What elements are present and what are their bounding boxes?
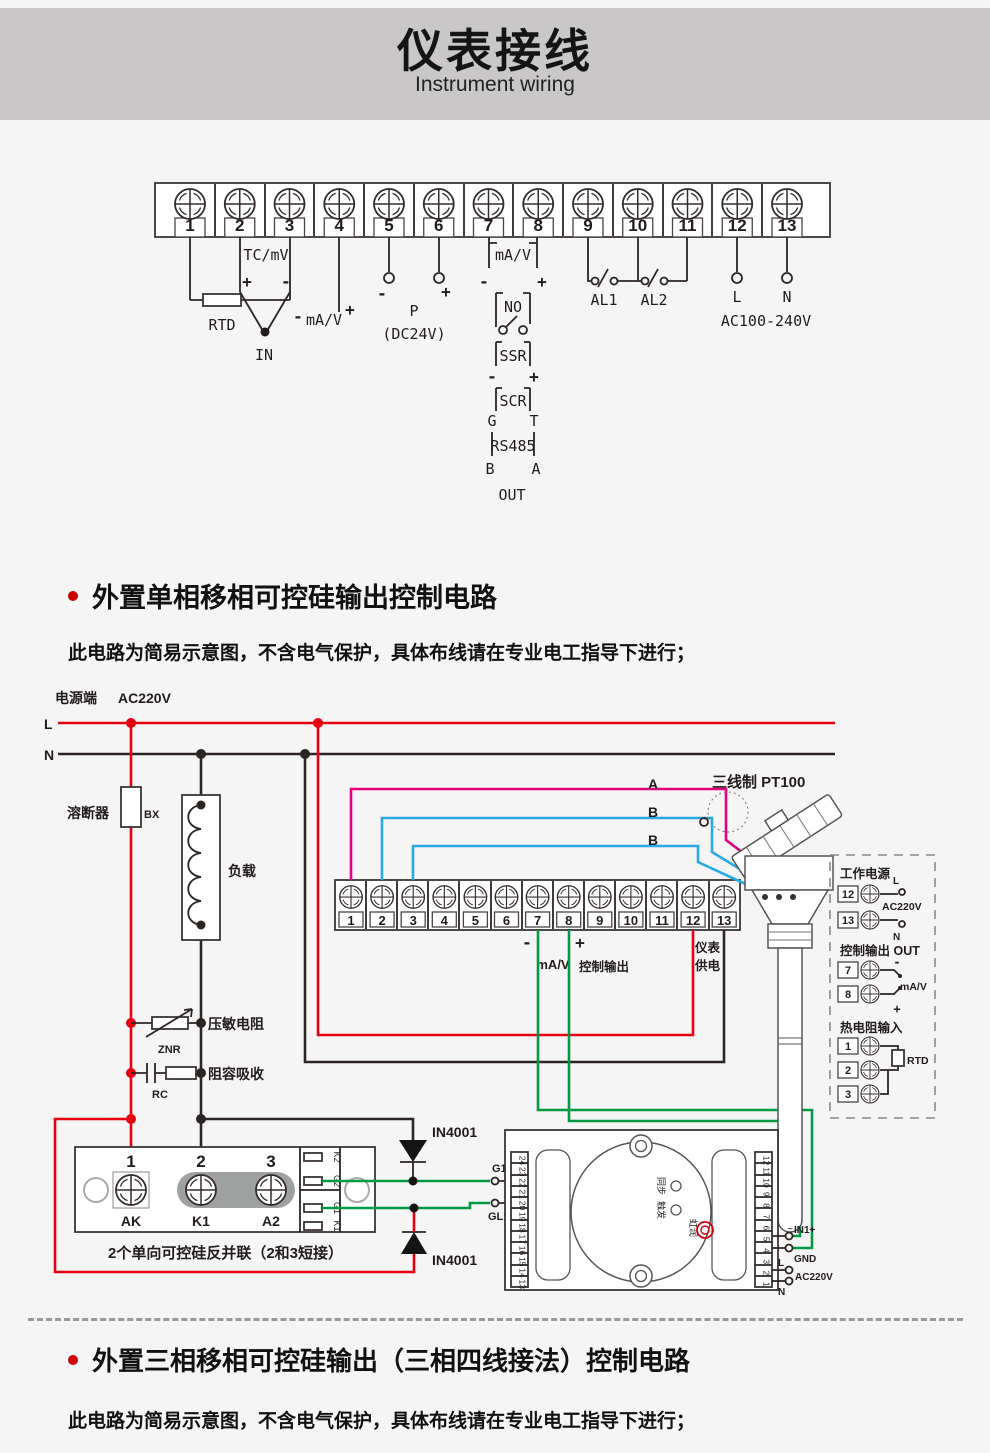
ref-t7: 7 [845, 965, 851, 977]
screw-terminal-icon [433, 886, 456, 909]
znr-code: ZNR [158, 1044, 181, 1056]
screw-terminal-icon [175, 189, 205, 219]
pin-number: 9 [762, 1192, 772, 1197]
screw-terminal-icon [464, 886, 487, 909]
fuse-code: BX [144, 809, 160, 821]
pt100-label: 三线制 PT100 [712, 773, 805, 791]
ref-mav: mA/V [900, 981, 927, 993]
pin-number: 16 [518, 1246, 528, 1256]
terminal-number: 12 [728, 216, 747, 235]
mav-in-plus: + [345, 300, 355, 319]
trigger-left-pins: 242322212019181716151413 [518, 1156, 528, 1289]
ref-t12: 12 [842, 889, 854, 901]
in1-label: IN1+ [794, 1225, 816, 1236]
p-label: P [409, 302, 418, 320]
meter-supply-label-2: 供电 [694, 958, 721, 973]
terminal-wiring-diagram: 12345678910111213 TC/mV + - RTD - mA/V +… [0, 160, 990, 520]
ctrl-out-label: 控制输出 [579, 959, 629, 974]
mav-in-label: mA/V [306, 311, 342, 329]
scr-terminal-1: 1 [126, 1152, 135, 1171]
diode2 [401, 1232, 427, 1254]
ref-t8: 8 [845, 989, 851, 1001]
pin-number: 6 [762, 1226, 772, 1231]
pin-number: 18 [518, 1223, 528, 1233]
screw-terminal-icon [523, 189, 553, 219]
tc-minus: - [281, 272, 291, 291]
diode2-label: IN4001 [432, 1252, 477, 1268]
mav-out-minus: - [479, 272, 489, 291]
pin-number: 5 [762, 1237, 772, 1242]
mav-out-label: mA/V [495, 246, 531, 264]
p-minus: - [377, 284, 387, 303]
wire-a-label: A [648, 776, 658, 792]
terminal-number: 2 [235, 216, 244, 235]
screw-terminal-icon [673, 189, 703, 219]
rtd-label: RTD [208, 316, 235, 334]
pin-number: 24 [518, 1156, 528, 1166]
terminal-number: 8 [565, 913, 572, 928]
gnd-label: GND [794, 1254, 816, 1265]
scr-module-caption: 2个单向可控硅反并联（2和3短接） [108, 1244, 343, 1262]
power-end-label: 电源端 [55, 690, 97, 706]
fuse-label: 溶断器 [67, 805, 110, 821]
terminal-number: 12 [686, 913, 700, 928]
ctrl-minus: - [522, 933, 532, 952]
in-label: IN [255, 346, 273, 364]
ref-plus: + [893, 1002, 900, 1016]
ref-t3: 3 [845, 1089, 851, 1101]
ssr-minus: - [487, 367, 497, 386]
pin-number: 11 [762, 1167, 772, 1176]
out-label: OUT [498, 486, 525, 504]
terminal-number: 10 [628, 216, 647, 235]
rs485-b: B [485, 460, 494, 478]
scr-a2-label: A2 [262, 1213, 280, 1229]
screw-terminal-icon [772, 189, 802, 219]
al2-label: AL2 [640, 291, 667, 309]
diode1 [399, 1140, 427, 1162]
terminal-number: 2 [378, 913, 385, 928]
terminal-number: 4 [441, 913, 449, 928]
indicator-label-1: 同步 [656, 1177, 666, 1195]
al1-label: AL1 [590, 291, 617, 309]
screw-terminal-icon [374, 189, 404, 219]
terminal-number: 1 [347, 913, 354, 928]
rc-label: 阻容吸收 [208, 1066, 265, 1082]
scr-label: SCR [499, 392, 527, 410]
terminal-number: 4 [335, 216, 345, 235]
ref-t2: 2 [845, 1065, 851, 1077]
terminal-number: 9 [596, 913, 603, 928]
terminal-number: 9 [583, 216, 592, 235]
terminal-number: 7 [534, 913, 541, 928]
terminal-number: 13 [717, 913, 731, 928]
terminal-number: 3 [285, 216, 294, 235]
ref-l: L [893, 876, 899, 887]
pin-number: 1 [762, 1282, 772, 1287]
p-plus: + [441, 282, 451, 301]
scr-terminal-3: 3 [266, 1152, 275, 1171]
wire-b1-label: B [648, 804, 658, 820]
section2-title-row: 外置三相移相可控硅输出（三相四线接法）控制电路 [68, 1341, 690, 1378]
terminal-number: 5 [472, 913, 479, 928]
section1-title-row: 外置单相移相可控硅输出控制电路 [68, 576, 497, 615]
pin-k1: K1 [332, 1220, 342, 1231]
terminal-number: 6 [503, 913, 510, 928]
tc-plus: + [242, 272, 252, 291]
pin-number: 7 [762, 1214, 772, 1219]
trigger-n-label: N [778, 1287, 785, 1298]
screw-terminal-icon [526, 886, 549, 909]
scr-control-circuit: 电源端 AC220V L N 溶断器 BX 负载 ZNR 压敏电阻 RC 阻容吸… [0, 675, 990, 1315]
pin-number: 20 [518, 1201, 528, 1211]
screw-terminal-icon [402, 886, 425, 909]
screw-terminal-icon [651, 886, 674, 909]
section1-note: 此电路为简易示意图，不含电气保护，具体布线请在专业电工指导下进行； [68, 638, 695, 665]
screw-terminal-icon [722, 189, 752, 219]
ctrl-plus: + [575, 933, 585, 952]
pin-number: 12 [762, 1156, 772, 1166]
pin-number: 22 [518, 1178, 528, 1188]
header-banner: 仪表接线 Instrument wiring [0, 8, 990, 120]
screw-terminal-icon [620, 886, 643, 909]
section2-title: 外置三相移相可控硅输出（三相四线接法）控制电路 [92, 1341, 690, 1378]
ref-power-title: 工作电源 [840, 866, 891, 881]
terminal-number: 11 [679, 216, 697, 235]
meter-supply-label-1: 仪表 [694, 940, 721, 955]
pin-number: 8 [762, 1203, 772, 1208]
ssr-plus: + [529, 367, 539, 386]
terminal-number: 8 [534, 216, 543, 235]
mav-in-minus: - [293, 307, 303, 326]
pin-number: 19 [518, 1212, 528, 1222]
pin-number: 2 [762, 1271, 772, 1276]
screw-terminal-icon [324, 189, 354, 219]
screw-terminal-icon [713, 886, 736, 909]
terminal-number: 3 [410, 913, 417, 928]
pin-number: 3 [762, 1259, 772, 1264]
ref-rtd-title: 热电阻输入 [840, 1020, 903, 1035]
diode1-label: IN4001 [432, 1124, 477, 1140]
fuse [121, 787, 141, 827]
wire-b2-label: B [648, 832, 658, 848]
pin-number: 15 [518, 1257, 528, 1267]
rs485-a: A [531, 460, 540, 478]
no-label: NO [504, 298, 522, 316]
screw-terminal-icon [275, 189, 305, 219]
terminal-number: 13 [778, 216, 797, 235]
pin-number: 23 [518, 1167, 528, 1177]
dashed-divider [28, 1318, 963, 1321]
power-n: N [782, 288, 791, 306]
screw-terminal-icon [623, 189, 653, 219]
screw-terminal-icon [340, 886, 363, 909]
ref-t13: 13 [842, 915, 854, 927]
screw-terminal-icon [557, 886, 580, 909]
screw-terminal-icon [424, 189, 454, 219]
page-title: 仪表接线 [0, 26, 990, 77]
ctrl-mav: mA/V [536, 957, 570, 972]
pin-number: 13 [518, 1280, 528, 1290]
red-bullet-icon [68, 591, 78, 601]
power-l: L [732, 288, 741, 306]
terminal-number: 6 [434, 216, 443, 235]
pin-number: 4 [762, 1248, 772, 1253]
scr-t: T [529, 412, 538, 430]
wiring-reference-box: 工作电源 12 L AC220V 13 N 控制输出 OUT 7 - mA/V … [830, 855, 935, 1118]
rs485-label: RS485 [490, 437, 535, 455]
rtd-resistor [203, 294, 241, 306]
ssr-label: SSR [499, 347, 527, 365]
znr-label: 压敏电阻 [208, 1016, 264, 1032]
power-range: AC100-240V [721, 312, 811, 330]
scr-ak-label: AK [121, 1213, 141, 1229]
bus-n-label: N [44, 747, 54, 763]
screw-terminal-icon [573, 189, 603, 219]
trigger-l-label: L [778, 1258, 784, 1269]
screw-terminal-icon [589, 886, 612, 909]
terminal-number: 1 [185, 216, 194, 235]
rc-resistor [166, 1067, 196, 1079]
terminal-number: 7 [484, 216, 493, 235]
screw-terminal-icon [682, 886, 705, 909]
tc-label: TC/mV [243, 246, 288, 264]
ref-out-title: 控制输出 OUT [840, 943, 920, 958]
dc24v-label: (DC24V) [382, 325, 445, 343]
pin-number: 10 [762, 1178, 772, 1188]
pin-k2: K2 [332, 1151, 342, 1162]
screw-terminal-icon [495, 886, 518, 909]
load-label: 负载 [228, 863, 256, 879]
supply-l-wire [318, 723, 693, 1035]
pin-number: 14 [518, 1268, 528, 1278]
mav-out-plus: + [537, 272, 547, 291]
screw-terminal-icon [371, 886, 394, 909]
scr-k1-label: K1 [192, 1213, 210, 1229]
page-subtitle: Instrument wiring [0, 73, 990, 97]
section1-title: 外置单相移相可控硅输出控制电路 [92, 576, 497, 615]
scr-g: G [487, 412, 496, 430]
screw-terminal-icon [474, 189, 504, 219]
terminal-number: 11 [655, 913, 669, 928]
screw-terminal-icon [225, 189, 255, 219]
terminal-number: 5 [384, 216, 393, 235]
page: 仪表接线 Instrument wiring 12345678910111213… [0, 0, 990, 1453]
pin-number: 17 [518, 1235, 528, 1245]
indicator-label-2: 触发 [656, 1201, 667, 1219]
power-voltage: AC220V [118, 690, 172, 706]
rc-code: RC [152, 1089, 168, 1101]
tc-junction-dot [261, 328, 270, 337]
ref-t1: 1 [845, 1041, 851, 1053]
ref-ac220: AC220V [882, 901, 922, 913]
section2-note: 此电路为简易示意图，不含电气保护，具体布线请在专业电工指导下进行； [68, 1406, 695, 1433]
ref-n: N [893, 932, 900, 943]
red-bullet-icon [68, 1355, 78, 1365]
diode-top-wire [201, 1119, 413, 1140]
terminal-number: 10 [624, 913, 638, 928]
bus-l-label: L [44, 716, 53, 732]
pin-number: 21 [518, 1190, 528, 1200]
ref-rtd: RTD [907, 1055, 929, 1067]
scr-terminal-2: 2 [196, 1152, 205, 1171]
ref-minus: - [893, 955, 900, 969]
trigger-ac-label: AC220V [795, 1272, 833, 1283]
